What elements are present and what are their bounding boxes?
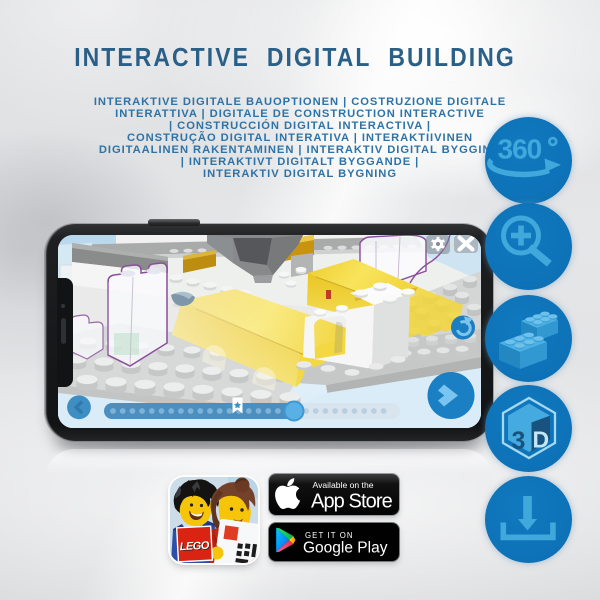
svg-text:360: 360 [497,133,541,164]
svg-text:3: 3 [511,427,525,455]
svg-text:D: D [532,427,549,453]
svg-text:LEGO: LEGO [179,540,210,554]
svg-text:Available on the: Available on the [313,480,374,490]
svg-text:App Store: App Store [311,491,393,513]
svg-text:Google Play: Google Play [303,540,388,557]
